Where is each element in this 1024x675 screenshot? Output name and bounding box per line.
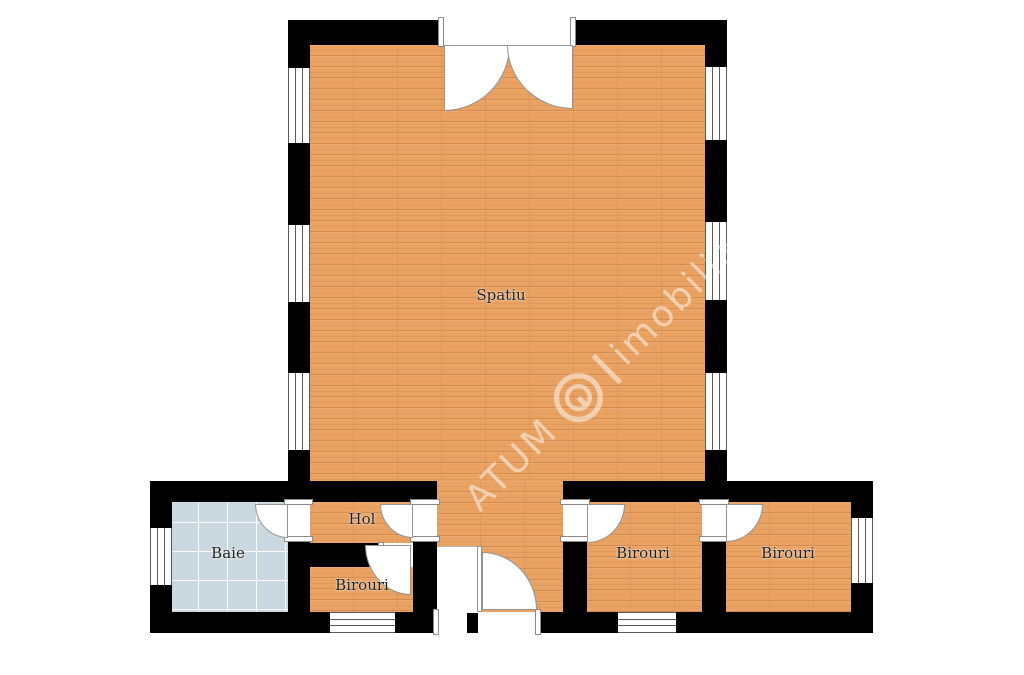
window <box>705 373 727 450</box>
floorplan-canvas: Spatiu Baie Hol Birouri Birouri Birouri … <box>0 0 1024 675</box>
room-label-baie: Baie <box>211 544 245 562</box>
window <box>288 68 310 143</box>
window <box>851 518 873 583</box>
window <box>618 612 676 633</box>
door-jamb <box>570 17 576 47</box>
wall-outer-right-seg2 <box>851 583 873 633</box>
room-label-birouri-right: Birouri <box>761 544 815 562</box>
door-jamb <box>284 536 313 542</box>
door-jamb <box>699 499 729 505</box>
door-jamb <box>433 609 439 635</box>
wall-outer-right-seg1 <box>851 481 873 518</box>
door-opening-birouri-middle <box>563 502 587 540</box>
wall-left-seg3 <box>288 302 310 373</box>
wall-bottom-seg3 <box>537 612 618 633</box>
door-jamb <box>560 536 590 542</box>
room-label-spatiu: Spatiu <box>476 286 525 304</box>
room-label-birouri-middle: Birouri <box>616 544 670 562</box>
wall-left-seg2 <box>288 143 310 225</box>
door-jamb <box>410 536 440 542</box>
door-recess-bottom <box>437 546 478 613</box>
window <box>705 222 727 300</box>
door-jamb <box>438 17 444 47</box>
wall-top-left <box>288 20 442 45</box>
door-opening-main-entrance <box>442 20 575 45</box>
wall-hol-right <box>413 540 437 612</box>
wall-bottom-stub <box>467 612 478 633</box>
door-opening-hol <box>413 502 437 540</box>
wall-outer-left-seg1 <box>150 481 172 528</box>
window <box>150 528 172 585</box>
wall-bottom-seg1 <box>150 612 330 633</box>
door-opening-birouri-right <box>702 502 726 540</box>
door-jamb <box>410 499 440 505</box>
wall-bottom-seg4 <box>676 612 851 633</box>
wall-birouri-divider <box>702 540 726 612</box>
wall-right-seg2 <box>705 140 727 222</box>
wall-left-seg1 <box>288 20 310 68</box>
door-jamb <box>535 609 541 635</box>
door-opening-bottom-a <box>437 612 467 633</box>
window <box>330 612 395 633</box>
wall-right-seg3 <box>705 300 727 373</box>
door-jamb <box>284 499 313 505</box>
wall-right-seg1 <box>705 20 727 67</box>
window <box>288 373 310 450</box>
window <box>288 225 310 302</box>
room-spatiu-floor <box>310 45 706 481</box>
wall-bottom-seg2 <box>395 612 437 633</box>
room-label-hol: Hol <box>349 510 376 528</box>
door-jamb <box>560 499 590 505</box>
window <box>705 67 727 140</box>
door-opening-bottom-b <box>478 612 537 633</box>
door-opening-baie <box>288 502 310 540</box>
room-label-birouri-left: Birouri <box>335 576 389 594</box>
door-jamb <box>699 536 729 542</box>
wall-corridor-right <box>563 540 587 612</box>
